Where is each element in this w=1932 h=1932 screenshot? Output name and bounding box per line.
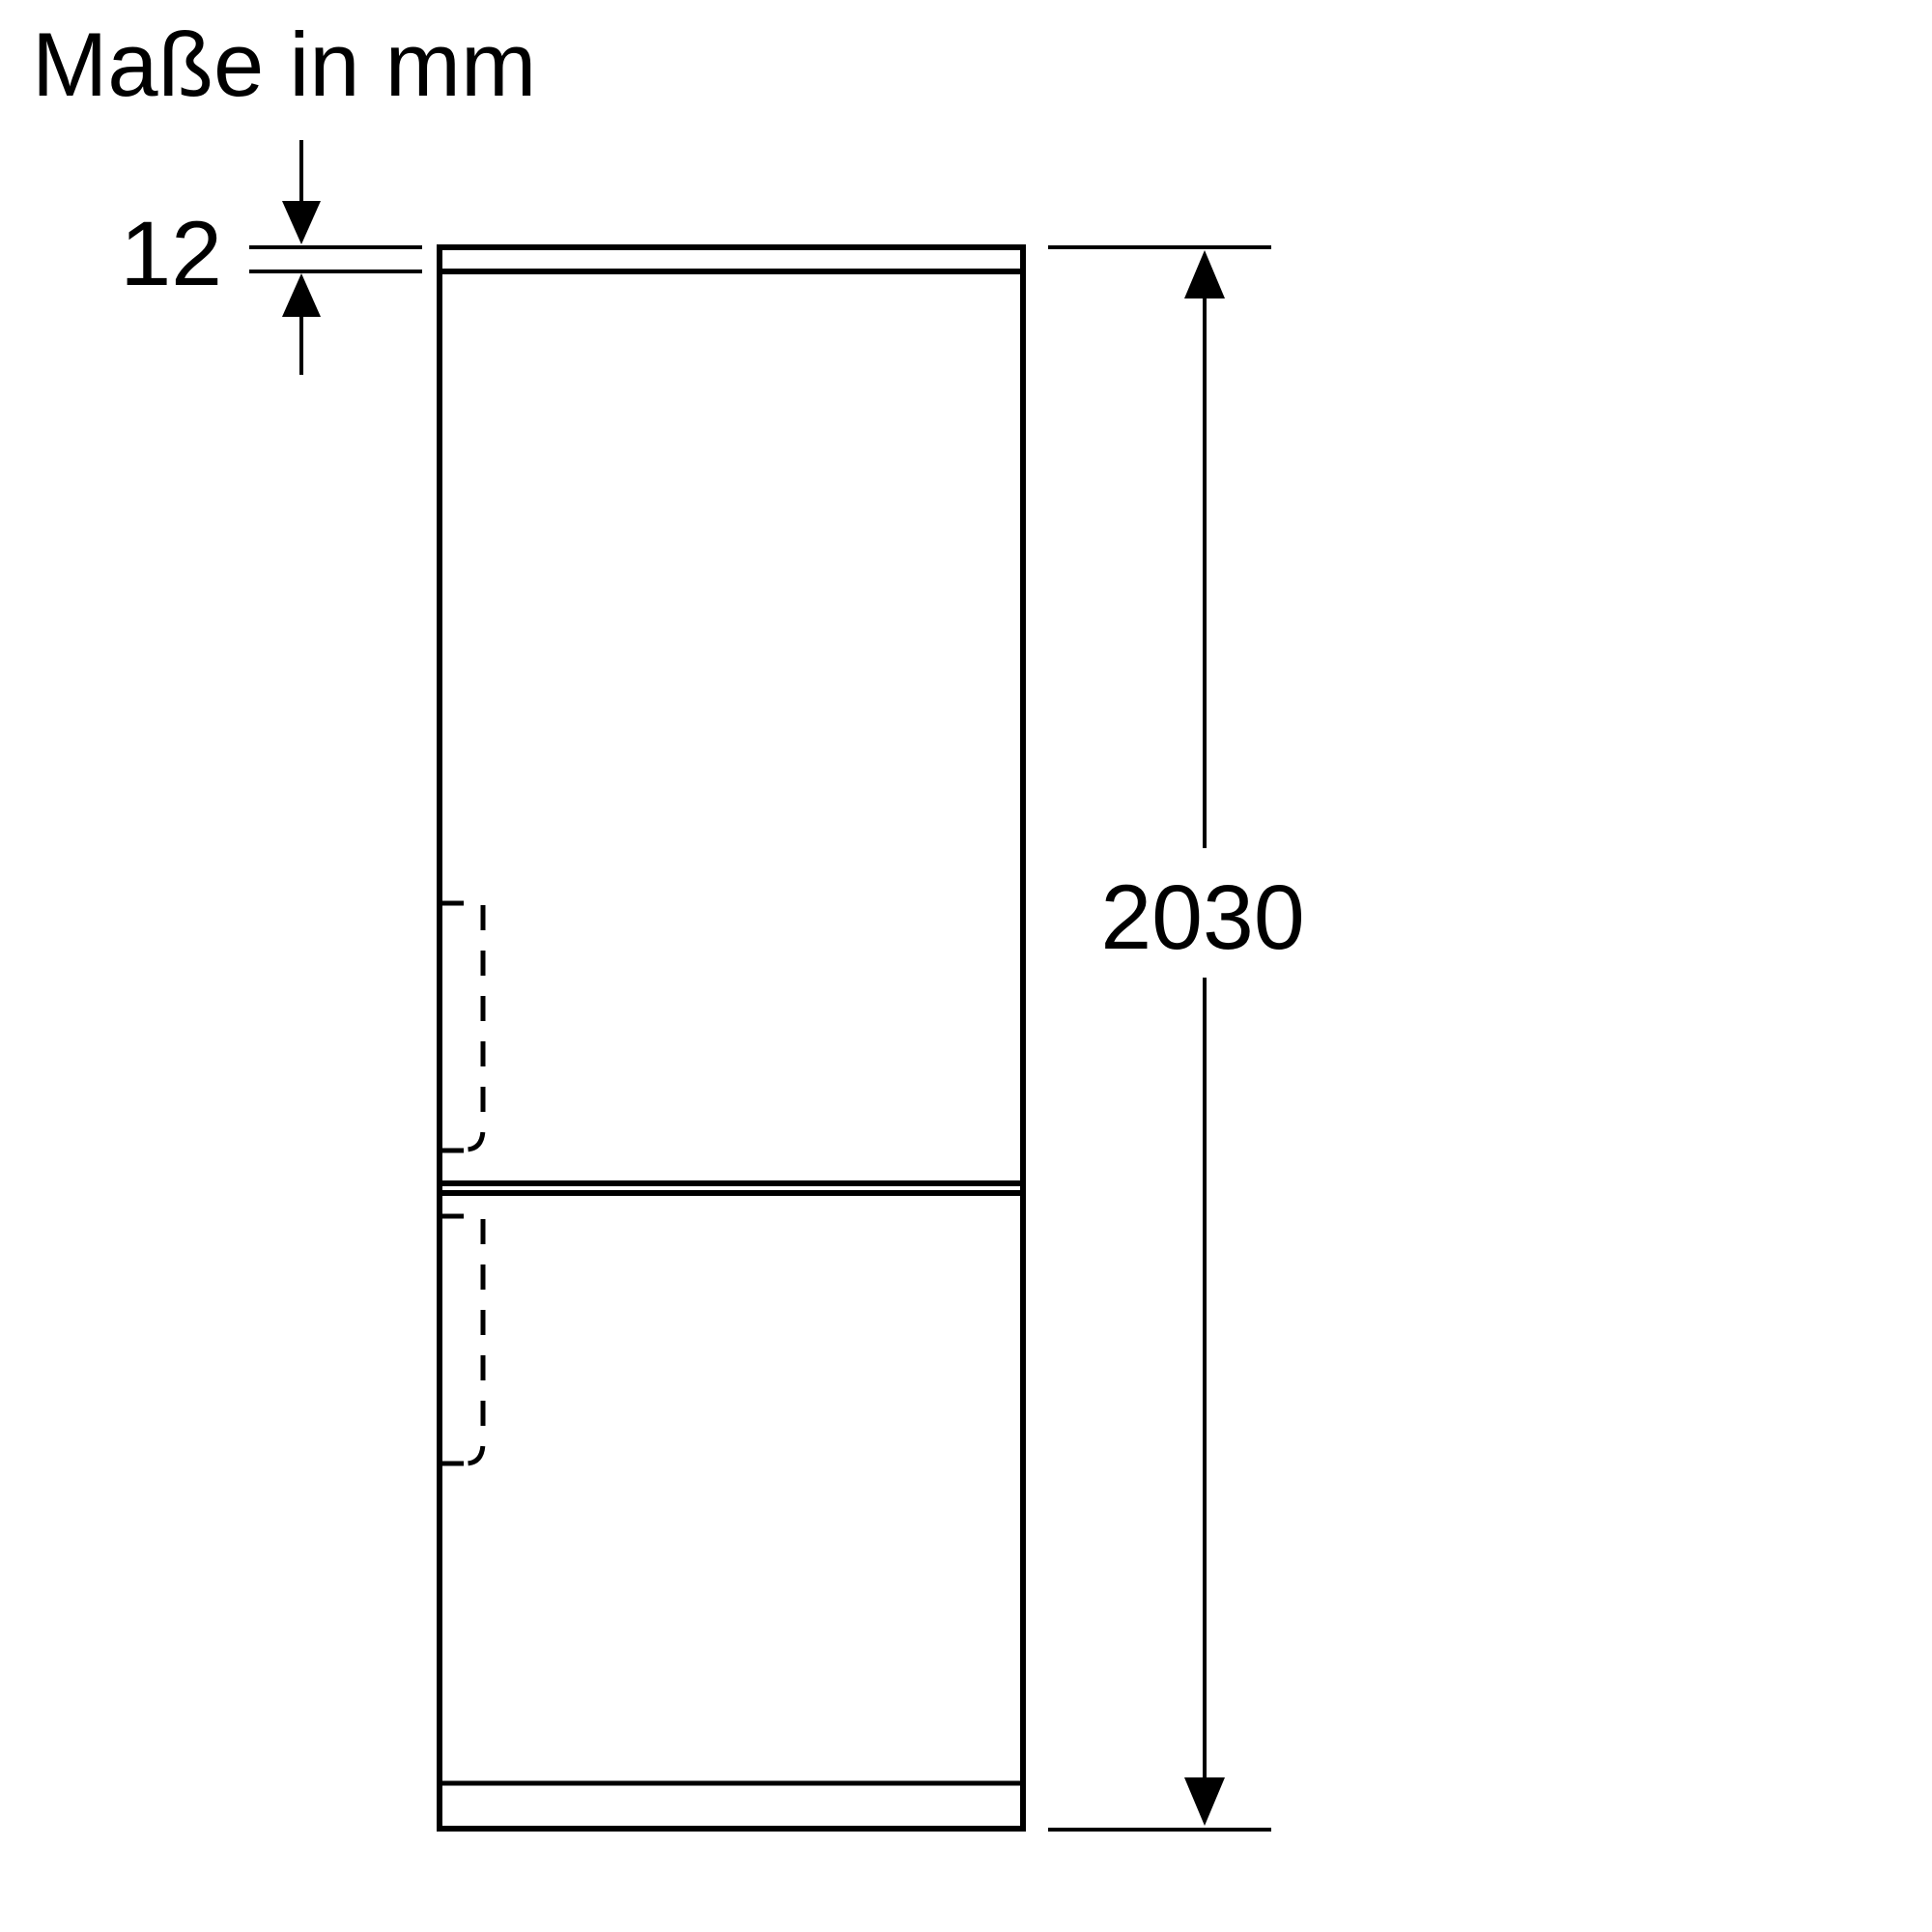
units-heading: Maße in mm bbox=[32, 14, 536, 115]
canvas-background bbox=[0, 0, 1932, 1932]
top-thickness-label: 12 bbox=[120, 203, 222, 305]
dimension-diagram: Maße in mm 12 2030 bbox=[0, 0, 1932, 1932]
total-height-label: 2030 bbox=[1100, 867, 1304, 969]
